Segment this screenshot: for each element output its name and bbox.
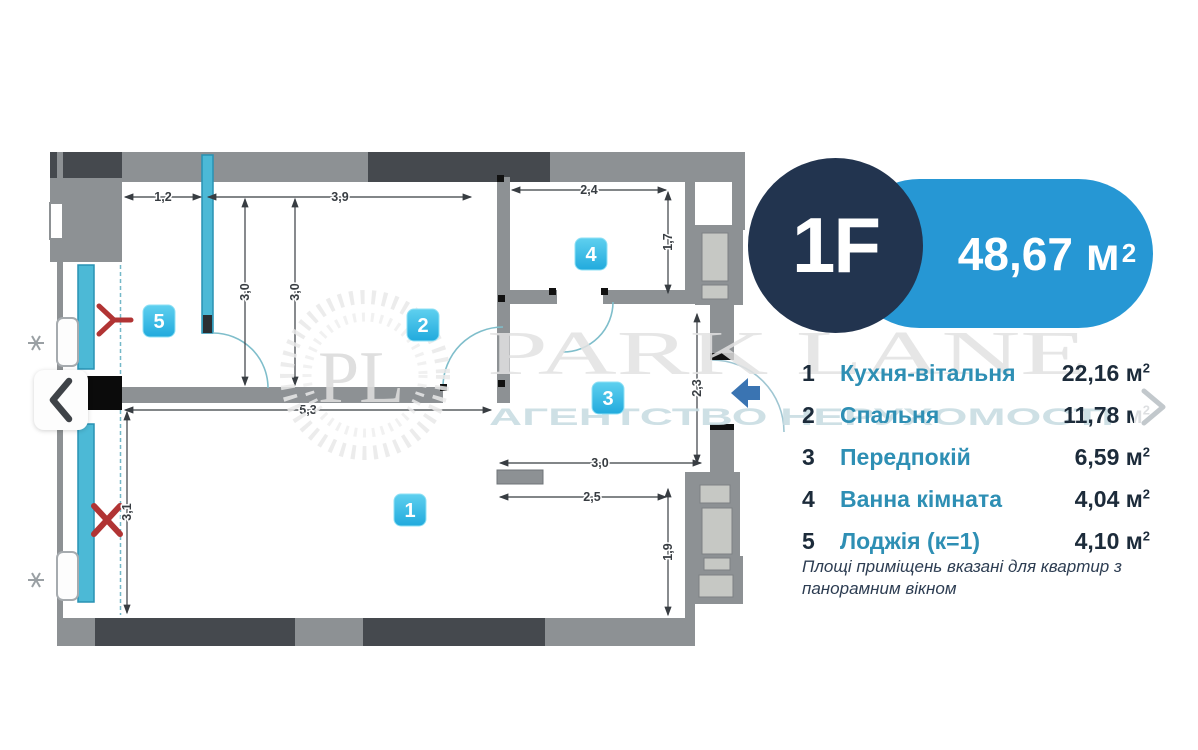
svg-text:3: 3 <box>602 388 613 410</box>
legend-row-number: 5 <box>802 528 834 555</box>
svg-text:5: 5 <box>153 311 164 333</box>
glass-partition <box>202 155 213 333</box>
legend-row-number: 4 <box>802 486 834 513</box>
window-markers <box>94 306 131 534</box>
legend-row-number: 2 <box>802 402 834 429</box>
unit-type-badge: 1F <box>748 158 923 333</box>
legend-row-name: Спальня <box>834 402 1063 429</box>
carousel-prev-button[interactable] <box>34 370 88 430</box>
snowflake-icon <box>28 573 44 587</box>
legend-row-value: 4,04 <box>1075 486 1120 512</box>
legend-row-value: 4,10 <box>1075 528 1120 554</box>
legend-row-name: Кухня-вітальня <box>834 360 1062 387</box>
dim-label: 3,0 <box>238 283 252 300</box>
floorplan-listing-page: 1,2 3,9 2,4 1,7 3,0 3,0 5,3 2,3 3,0 2,5 … <box>0 0 1198 750</box>
legend-row-hallway: 3 Передпокій 6,59 м2 <box>802 436 1150 478</box>
chevron-left-icon <box>42 374 80 426</box>
legend-row-name: Ванна кімната <box>834 486 1075 513</box>
loggia-door-arc <box>213 333 268 388</box>
legend-row-value: 22,16 <box>1062 360 1120 386</box>
window-marker-y-icon <box>99 306 131 334</box>
utility-shaft-upper <box>695 225 743 305</box>
dim-label: 2,5 <box>583 490 600 504</box>
legend-row-bathroom: 4 Ванна кімната 4,04 м2 <box>802 478 1150 520</box>
unit-type-label: 1F <box>792 200 879 291</box>
utility-shaft-lower <box>685 472 740 604</box>
legend-row-name: Лоджія (к=1) <box>834 528 1075 555</box>
kitchen-counter <box>497 470 543 484</box>
legend-row-value: 6,59 <box>1075 444 1120 470</box>
room-legend: 1 Кухня-вітальня 22,16 м2 2 Спальня 11,7… <box>802 352 1150 562</box>
total-area-unit: м <box>1086 227 1120 281</box>
dim-label: 1,9 <box>661 543 675 560</box>
dim-label: 3,9 <box>331 190 348 204</box>
window-marker-x-icon <box>94 506 120 534</box>
room-chip-5: 5 <box>143 305 175 337</box>
dim-label: 3,1 <box>120 503 134 520</box>
svg-text:4: 4 <box>585 244 597 266</box>
svg-text:1: 1 <box>404 500 415 522</box>
room-chip-1: 1 <box>394 494 426 526</box>
panoramic-window-note: Площі приміщень вказані для квартир з па… <box>802 556 1142 600</box>
dim-label: 2,4 <box>580 183 597 197</box>
dim-label: 3,0 <box>591 456 608 470</box>
room-chip-3: 3 <box>592 382 624 414</box>
watermark-monogram: PL <box>318 337 404 419</box>
legend-row-bedroom: 2 Спальня 11,78 м2 <box>802 394 1150 436</box>
dim-label: 3,0 <box>288 283 302 300</box>
chevron-right-icon <box>1138 386 1170 428</box>
carousel-next-button[interactable] <box>1134 384 1174 430</box>
dim-label: 1,7 <box>661 233 675 250</box>
total-area-value: 48,67 <box>958 227 1073 281</box>
room-chip-4: 4 <box>575 238 607 270</box>
svg-text:2: 2 <box>417 315 428 337</box>
legend-row-kitchen: 1 Кухня-вітальня 22,16 м2 <box>802 352 1150 394</box>
room-chip-2: 2 <box>407 309 439 341</box>
legend-row-number: 3 <box>802 444 834 471</box>
legend-row-value: 11,78 <box>1063 402 1119 428</box>
door-handle <box>203 315 212 333</box>
legend-row-name: Передпокій <box>834 444 1075 471</box>
snowflake-icon <box>28 336 44 350</box>
legend-row-number: 1 <box>802 360 834 387</box>
dim-label: 1,2 <box>154 190 171 204</box>
